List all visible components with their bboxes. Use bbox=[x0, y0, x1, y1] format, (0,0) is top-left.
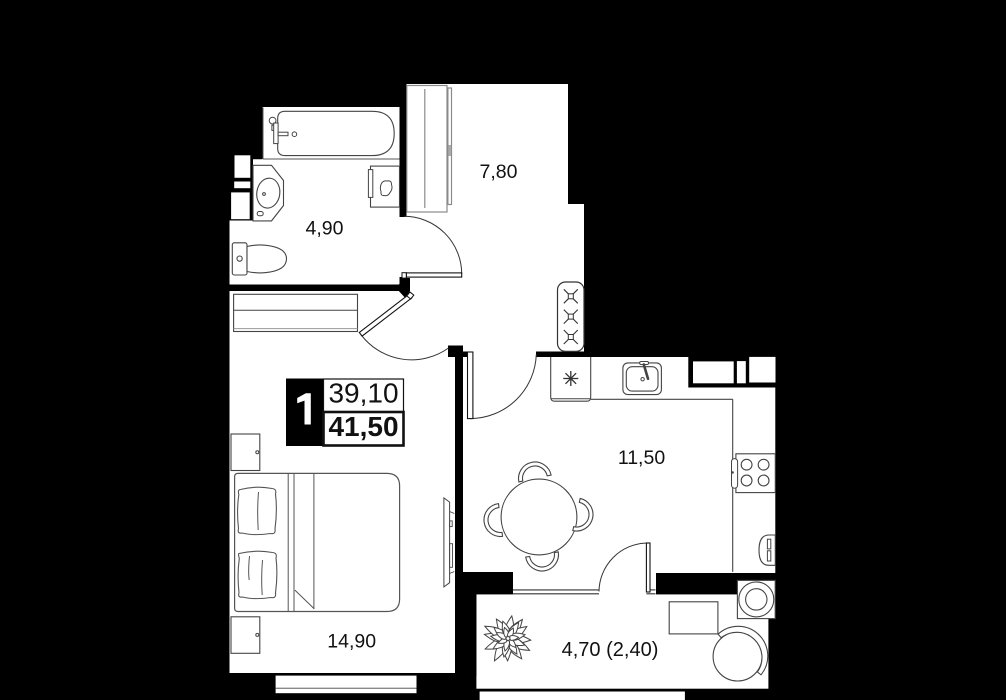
svg-text:11,50: 11,50 bbox=[618, 447, 666, 469]
svg-text:39,10: 39,10 bbox=[328, 378, 398, 409]
svg-text:7,80: 7,80 bbox=[480, 161, 518, 183]
svg-text:4,70 (2,40): 4,70 (2,40) bbox=[562, 639, 659, 661]
svg-text:4,90: 4,90 bbox=[306, 218, 344, 240]
svg-text:41,50: 41,50 bbox=[328, 411, 398, 442]
svg-text:14,90: 14,90 bbox=[327, 631, 376, 653]
